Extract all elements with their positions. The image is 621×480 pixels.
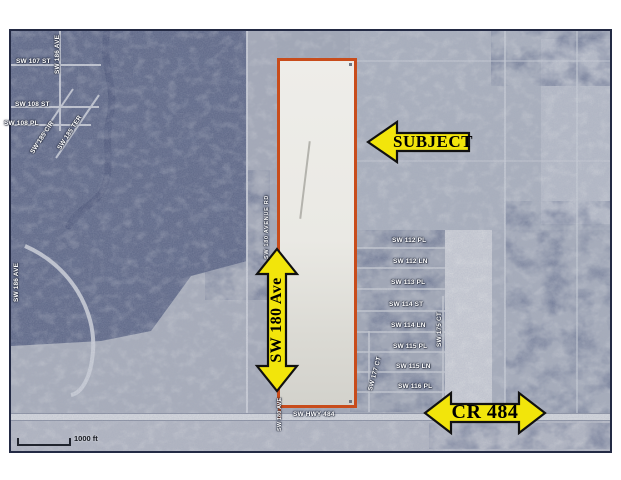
street-label: SW 108 PL: [4, 121, 39, 128]
street-label: SW 180 AVE: [278, 398, 284, 431]
street-label: SW 175 CT: [437, 312, 444, 347]
street-label: SW 186 AVE: [55, 35, 62, 74]
street-label: SW 108 ST: [15, 102, 50, 109]
survey-pin: [349, 63, 352, 66]
highway-arrow: CR 484: [422, 387, 548, 439]
street-label: SW 115 PL: [393, 344, 427, 351]
scale-bar-label: 1000 ft: [74, 434, 98, 443]
street-label: SW 107 ST: [16, 59, 51, 66]
scale-bar: [17, 439, 71, 446]
street-label: SW 186 AVE: [14, 263, 21, 302]
street-label: SW 114 LN: [391, 323, 426, 330]
street-label: SW 113 PL: [391, 280, 425, 287]
parcel-track-mark: [299, 141, 310, 219]
subject-arrow: SUBJECT: [365, 117, 473, 167]
highway-arrow-label: CR 484: [422, 387, 548, 439]
avenue-arrow-label: SW 180 Ave: [268, 277, 286, 362]
street-label: SW 115 LN: [396, 364, 431, 371]
map-exhibit-page: SW 107 ST SW 186 AVE SW 108 ST SW 108 PL…: [0, 0, 621, 480]
street-label: SW 114 ST: [389, 302, 423, 309]
street-label: SW 112 PL: [392, 238, 426, 245]
survey-pin: [349, 400, 352, 403]
subject-arrow-label: SUBJECT: [398, 117, 468, 167]
street-label: SW 112 LN: [393, 259, 428, 266]
avenue-arrow: SW 180 Ave: [251, 246, 303, 394]
street-label: SW HWY 484: [293, 412, 334, 419]
